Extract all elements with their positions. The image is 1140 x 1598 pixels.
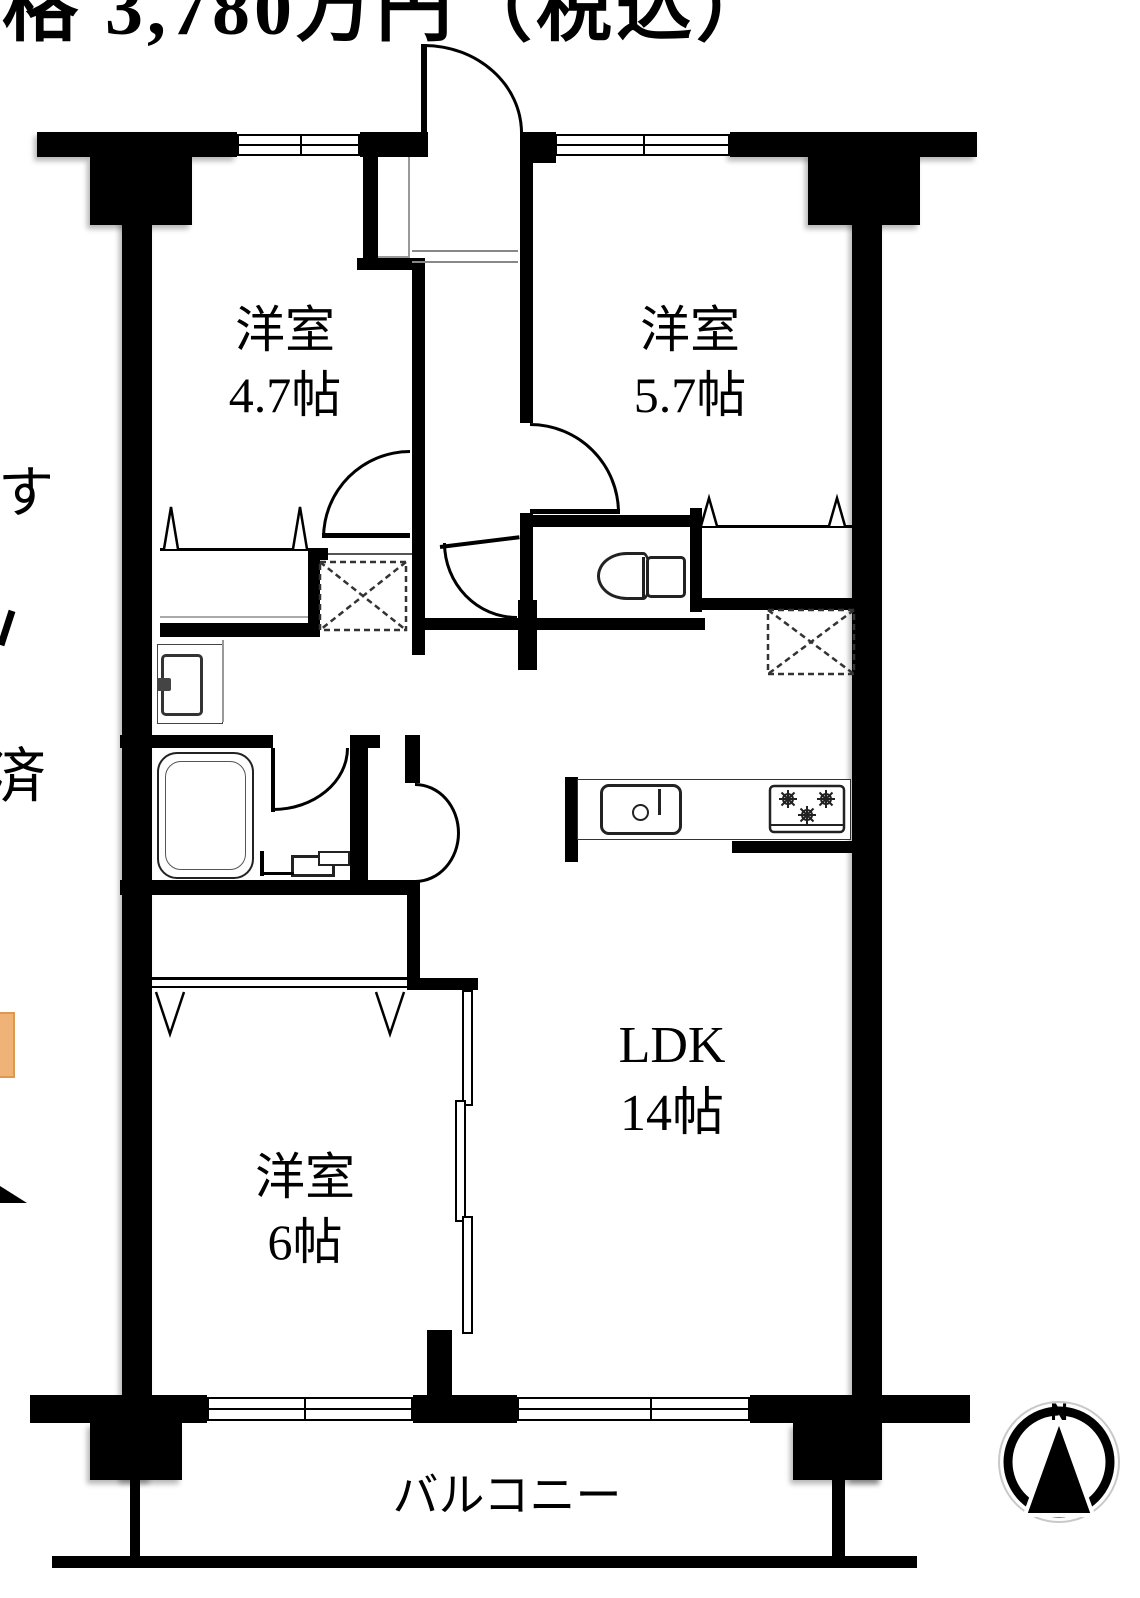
window-balcony-right xyxy=(517,1397,750,1421)
price-text: 格 3,780万円（税込） xyxy=(2,0,1132,59)
closet47-tick-icon xyxy=(291,505,309,550)
room-size: 6帖 xyxy=(205,1210,405,1275)
closet6-tick-icon xyxy=(154,990,186,1036)
pillar-bottom-left xyxy=(90,1423,182,1480)
pillar-top-left xyxy=(90,157,192,225)
margin-stroke-fragment xyxy=(0,610,15,646)
wall-storage-left xyxy=(350,747,368,883)
balcony-divider-right xyxy=(832,1480,845,1568)
wall-top-2 xyxy=(360,132,428,157)
room-size: 5.7帖 xyxy=(590,363,790,428)
room-label-yoshitsu-6: 洋室 6帖 xyxy=(205,1145,405,1275)
wall-closet6-corner xyxy=(407,978,478,990)
margin-black-wedge xyxy=(0,1186,27,1203)
room-label-ldk: LDK 14帖 xyxy=(572,1012,772,1147)
window-glass-line xyxy=(519,1408,748,1410)
window-balcony-left xyxy=(207,1397,413,1421)
wall-closet47-corner xyxy=(308,548,328,560)
stove-icon xyxy=(768,784,846,840)
room-label-yoshitsu-4-7: 洋室 4.7帖 xyxy=(185,298,385,428)
wall-kitchen-bottom xyxy=(732,841,853,853)
wall-left xyxy=(122,132,152,1480)
laundry-pipe-h xyxy=(262,872,294,875)
closet47-tick-icon xyxy=(162,505,180,550)
window-glass-line xyxy=(209,1408,411,1410)
storage-door-leaf-top xyxy=(415,783,460,833)
bathtub-inner xyxy=(165,761,246,870)
room-name: LDK xyxy=(572,1012,772,1080)
margin-orange-bar xyxy=(0,1012,15,1078)
closet6-front-line-2 xyxy=(152,986,407,988)
margin-text-fragment-top: す xyxy=(0,458,54,531)
window-mullion xyxy=(650,1399,652,1419)
wall-closet6-right xyxy=(407,895,420,990)
room-name: 洋室 xyxy=(185,298,385,363)
room47-door-swing-arc xyxy=(322,450,410,538)
wall-stub-below-toilet xyxy=(518,600,537,670)
wall-washroom-top-left xyxy=(120,735,273,748)
window-top-right xyxy=(555,134,730,156)
shaft-inner-line-v xyxy=(408,157,410,258)
genkan-step-line-1 xyxy=(412,250,518,252)
closet57-tick-icon xyxy=(827,496,847,527)
pillar-top-right xyxy=(808,153,920,225)
genkan-step-line-2 xyxy=(412,261,518,263)
storage-door-leaf-bottom xyxy=(415,833,460,883)
window-top-left xyxy=(237,134,360,156)
toilet-tank xyxy=(646,556,686,598)
margin-text-fragment-bottom: 済 xyxy=(0,738,46,816)
closet47-shelf-line xyxy=(160,616,308,618)
refrigerator-space-icon xyxy=(766,608,856,676)
wall-corridor-right-upper xyxy=(520,157,533,423)
wall-bottom-3 xyxy=(750,1395,970,1423)
closet57-tick-icon xyxy=(699,496,719,527)
window-mullion xyxy=(304,1399,306,1419)
door47-threshold xyxy=(328,553,412,555)
pillar-bottom-right xyxy=(793,1423,882,1480)
sliding-partition-panel xyxy=(462,990,473,1106)
room-name: 洋室 xyxy=(205,1145,405,1210)
appliance-space-icon xyxy=(318,560,408,632)
window-mullion xyxy=(300,136,302,154)
shaft-inner-line-h xyxy=(378,256,408,258)
wall-bath-bottom xyxy=(120,880,420,895)
wall-toilet-bottom xyxy=(422,618,705,630)
balcony-divider-left xyxy=(130,1480,140,1558)
wall-closet47-bottom xyxy=(160,623,313,637)
sliding-partition-panel xyxy=(455,1100,466,1222)
wall-corridor-left xyxy=(412,258,425,655)
corridor-door-swing-arc xyxy=(443,543,517,619)
compass-icon: N xyxy=(995,1396,1125,1526)
toilet-seam-line xyxy=(642,557,645,597)
kitchen-faucet-line xyxy=(658,789,661,815)
wall-bottom-2 xyxy=(413,1395,517,1423)
closet6-tick-icon xyxy=(374,990,406,1036)
wall-shaft-left xyxy=(363,157,378,270)
room57-door-swing-arc xyxy=(530,423,620,513)
window-mullion xyxy=(643,136,645,154)
floorplan-page: 格 3,780万円（税込） す 済 xyxy=(0,0,1140,1598)
room-size: 14帖 xyxy=(572,1080,772,1148)
room-name: 洋室 xyxy=(590,298,790,363)
sliding-partition-panel xyxy=(462,1216,473,1334)
wall-bottom-1 xyxy=(30,1395,207,1423)
closet47-front-line xyxy=(160,548,310,551)
room-size: 4.7帖 xyxy=(185,363,385,428)
balcony-edge-bottom xyxy=(52,1556,917,1568)
vanity-edge-line xyxy=(222,640,224,722)
wall-storage-stub xyxy=(405,735,420,783)
balcony-label: バルコニー xyxy=(362,1466,652,1526)
room-label-yoshitsu-5-7: 洋室 5.7帖 xyxy=(590,298,790,428)
closet6-front-line-1 xyxy=(152,977,407,980)
washbasin-faucet xyxy=(157,678,171,691)
kitchen-faucet-circle xyxy=(632,804,649,821)
wall-right xyxy=(852,153,882,1480)
compass-north-label: N xyxy=(1050,1399,1067,1426)
laundry-pipe-v xyxy=(260,851,264,876)
laundry-unit-small xyxy=(318,851,350,866)
window-glass-line xyxy=(239,144,358,146)
washroom-door-swing-arc xyxy=(273,748,349,811)
wall-partition-stem xyxy=(427,1330,452,1397)
wall-toilet-top xyxy=(530,515,700,527)
